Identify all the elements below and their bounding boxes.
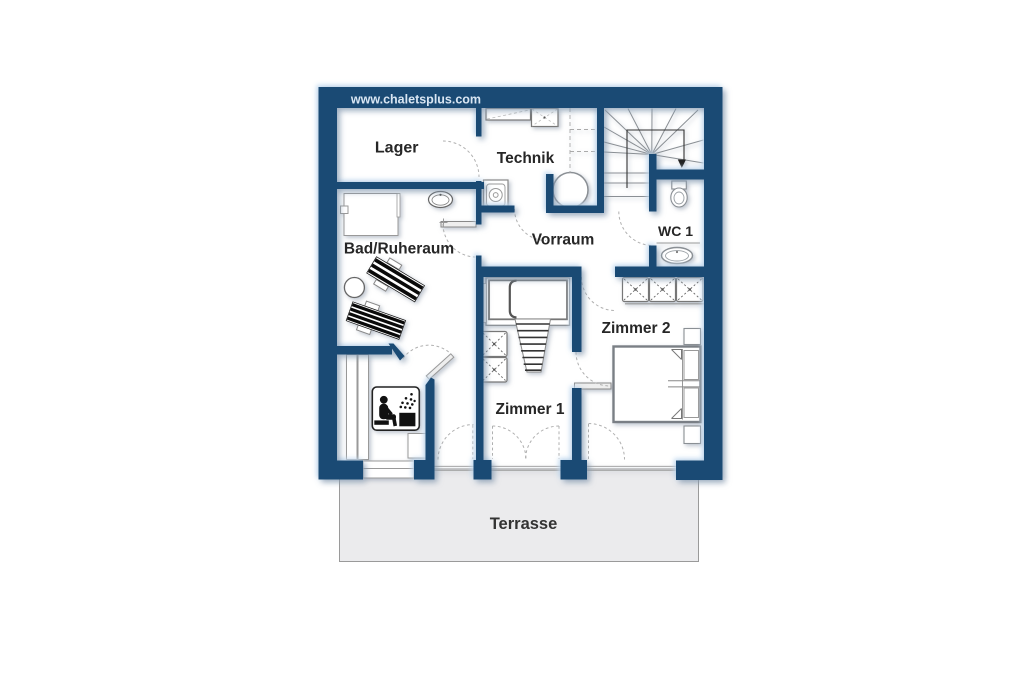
svg-text:Terrasse: Terrasse	[490, 515, 558, 533]
svg-text:WC 1: WC 1	[658, 223, 693, 239]
svg-text:Bad/Ruheraum: Bad/Ruheraum	[344, 241, 454, 258]
svg-text:Vorraum: Vorraum	[532, 232, 595, 249]
svg-text:Zimmer 2: Zimmer 2	[602, 320, 671, 337]
svg-text:www.chaletsplus.com: www.chaletsplus.com	[350, 93, 481, 107]
svg-text:Zimmer 1: Zimmer 1	[496, 401, 565, 418]
svg-text:Lager: Lager	[375, 140, 419, 157]
svg-text:Technik: Technik	[497, 150, 555, 167]
